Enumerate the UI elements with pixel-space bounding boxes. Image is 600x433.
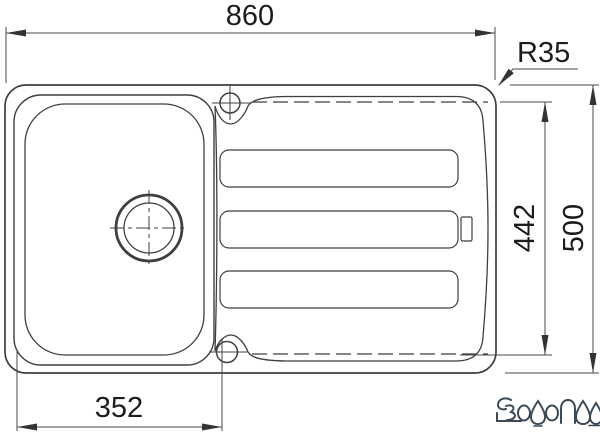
arrow-500-top [590,85,597,105]
bowl-outer-edge [14,95,214,365]
logo-glyph-o1 [518,406,530,421]
dim-label-442: 442 [509,204,541,252]
sink-geometry [5,85,496,373]
logo-glyph-d2 [576,401,590,424]
logo-glyph-v-curl [498,398,511,409]
logo-glyph-p [561,400,575,423]
technical-drawing-page: 860 R35 442 500 352 [0,0,600,433]
logo-glyph-d1 [531,401,545,424]
drainboard-groove-1 [220,150,458,187]
arrow-860-right [475,30,495,37]
logo-glyph-a [590,403,600,424]
arrow-860-left [6,30,26,37]
overflow-tab [461,217,472,241]
arrow-442-top [542,102,549,122]
arrow-r35 [498,69,514,86]
sink-outline [5,85,496,373]
arrow-442-bottom [542,335,549,355]
dim-label-860: 860 [226,0,274,32]
logo-glyph-v-body [506,405,515,420]
watermark-logo [497,398,600,426]
dim-label-500: 500 [558,204,590,252]
arrow-352-left [17,424,37,431]
bowl-inner-edge [25,104,204,355]
dimension-arrowheads [6,30,597,431]
drainboard-groove-2 [220,211,458,248]
dim-label-r35: R35 [517,37,570,69]
logo-glyph-o2 [546,406,558,421]
sink-dimension-drawing: 860 R35 442 500 352 [0,0,600,433]
arrow-500-bottom [590,353,597,373]
dim-label-352: 352 [95,392,143,424]
drainboard-groove-3 [220,271,458,308]
arrow-352-right [202,424,222,431]
drainboard-contour [215,97,488,362]
